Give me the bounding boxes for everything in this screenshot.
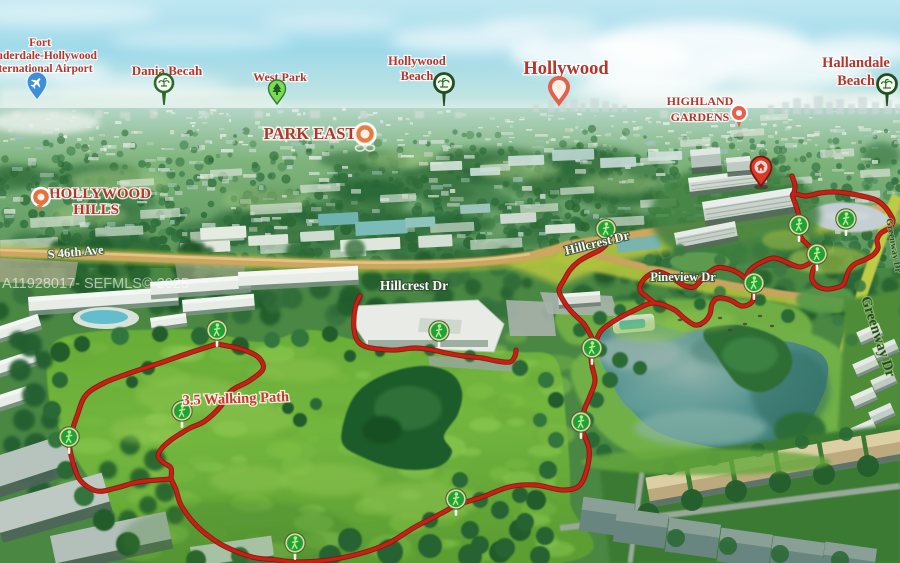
svg-text:Fort: Fort bbox=[29, 37, 51, 49]
svg-text:Hollywood: Hollywood bbox=[523, 59, 609, 79]
svg-text:Hollywood: Hollywood bbox=[388, 54, 446, 68]
svg-text:Beach: Beach bbox=[837, 73, 875, 89]
svg-text:Hallandale: Hallandale bbox=[822, 55, 890, 71]
svg-text:HILLS: HILLS bbox=[73, 202, 119, 218]
svg-text:PARK EAST: PARK EAST bbox=[264, 124, 357, 143]
svg-text:International Airport: International Airport bbox=[0, 63, 93, 75]
svg-text:Lauderdale-Hollywood: Lauderdale-Hollywood bbox=[0, 50, 97, 62]
svg-text:HIGHLAND: HIGHLAND bbox=[667, 94, 734, 108]
svg-text:A11928017- SEFMLS© 2025: A11928017- SEFMLS© 2025 bbox=[2, 276, 189, 292]
svg-text:Hillcrest Dr: Hillcrest Dr bbox=[380, 278, 448, 293]
svg-text:GARDENS: GARDENS bbox=[671, 110, 730, 124]
svg-text:HOLLYWOOD: HOLLYWOOD bbox=[49, 186, 151, 202]
svg-text:Pineview Dr: Pineview Dr bbox=[650, 270, 716, 284]
svg-text:Beach: Beach bbox=[401, 69, 434, 83]
